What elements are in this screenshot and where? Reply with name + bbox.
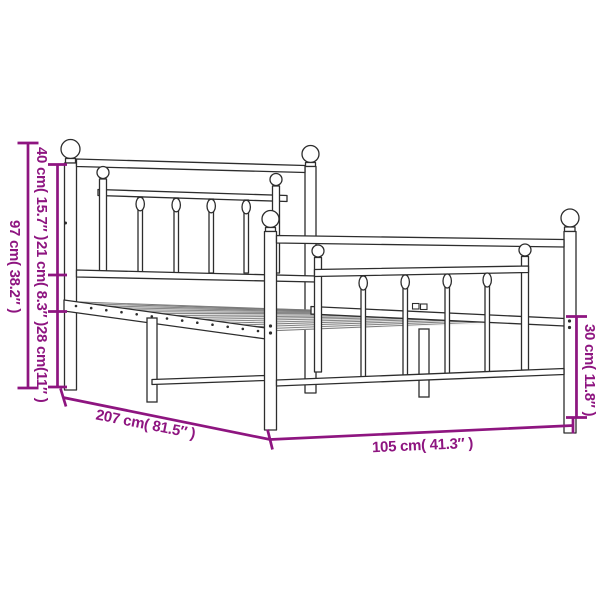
dimension-diagram: 97 cm( 38.2″ ) 40 cm( 15.7″ ) 21 cm( 8.3… [0,0,600,600]
dim-label-overall-height: 97 cm( 38.2″ ) [7,220,22,313]
dim-label-frame-width: 105 cm( 41.3″ ) [372,436,474,455]
dim-label-rail-to-base: 21 cm( 8.3″ ) [34,241,49,326]
dim-label-headboard-upper: 40 cm( 15.7″ ) [34,147,49,240]
bed-frame-drawing [0,0,600,600]
dim-label-clearance-left: 28 cm(11″ ) [34,326,49,402]
headboard [61,140,319,394]
dim-label-clearance-right: 30 cm( 11.8″ ) [582,324,597,416]
